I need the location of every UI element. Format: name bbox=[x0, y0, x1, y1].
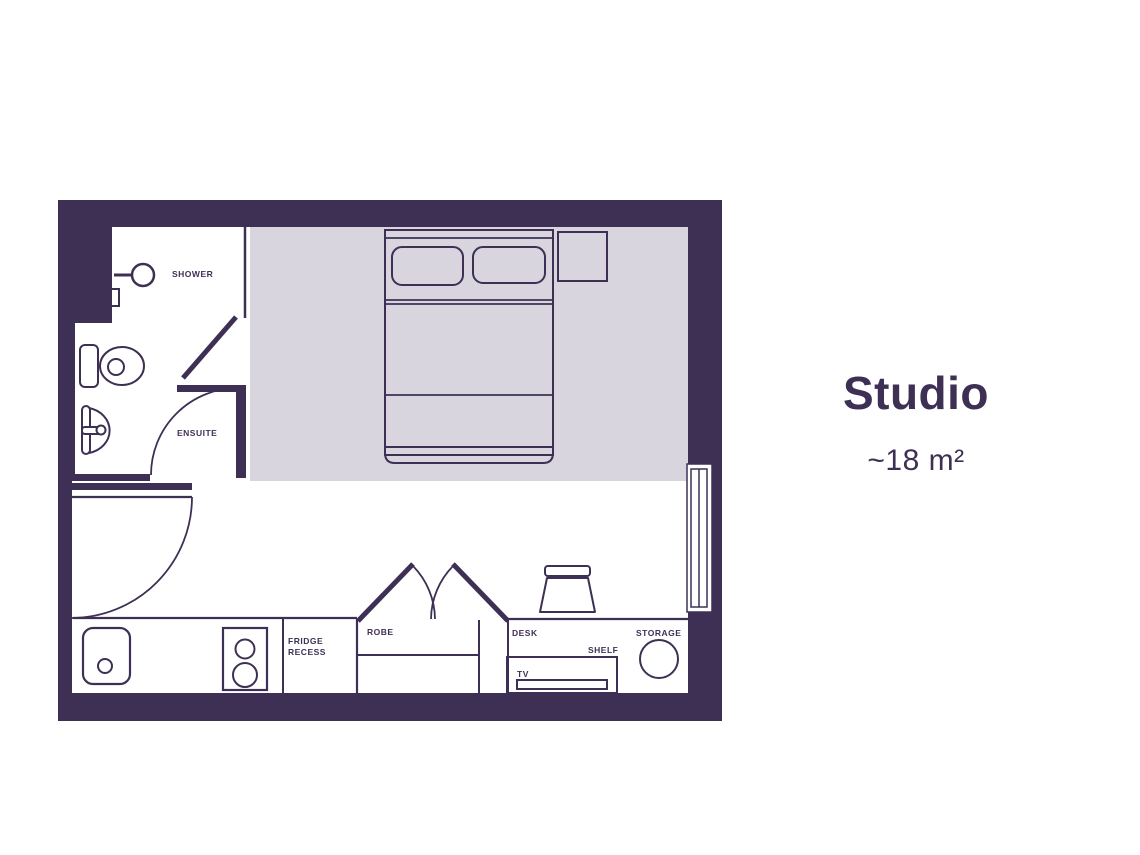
ensuite-label: ENSUITE bbox=[177, 428, 217, 438]
desk-label: DESK bbox=[512, 628, 538, 638]
robe-label: ROBE bbox=[367, 627, 394, 637]
bed-zone bbox=[250, 227, 688, 481]
chair-backrest-icon bbox=[545, 566, 590, 576]
shower-head-icon bbox=[132, 264, 154, 286]
shelf-label: SHELF bbox=[588, 645, 618, 655]
shower-label: SHOWER bbox=[172, 269, 213, 279]
basin-tap-knob-icon bbox=[97, 426, 106, 435]
room-area-text: ~18 m² bbox=[786, 444, 1046, 478]
window bbox=[687, 464, 712, 612]
floor-plan-page: SHOWER ENSUITE FRIDGE RECESS ROBE DESK S… bbox=[0, 0, 1140, 855]
ensuite-bottom-wall bbox=[58, 474, 150, 481]
chair-seat-icon bbox=[540, 578, 595, 612]
tv-label: TV bbox=[517, 669, 529, 679]
toilet-bowl-icon bbox=[100, 347, 144, 385]
fridge-recess-label-line2: RECESS bbox=[288, 647, 326, 657]
storage-label: STORAGE bbox=[636, 628, 681, 638]
toilet-cistern-icon bbox=[80, 345, 98, 387]
title-block: Studio ~18 m² bbox=[786, 368, 1046, 478]
walls bbox=[58, 200, 722, 721]
fridge-recess-label-line1: FRIDGE bbox=[288, 636, 323, 646]
entry-top-wall bbox=[58, 483, 192, 490]
shower-mixer-icon bbox=[111, 289, 119, 306]
room-type-title: Studio bbox=[786, 368, 1046, 418]
ensuite-door-jamb-wall bbox=[236, 385, 246, 478]
kitchen-sink-icon bbox=[83, 628, 130, 684]
